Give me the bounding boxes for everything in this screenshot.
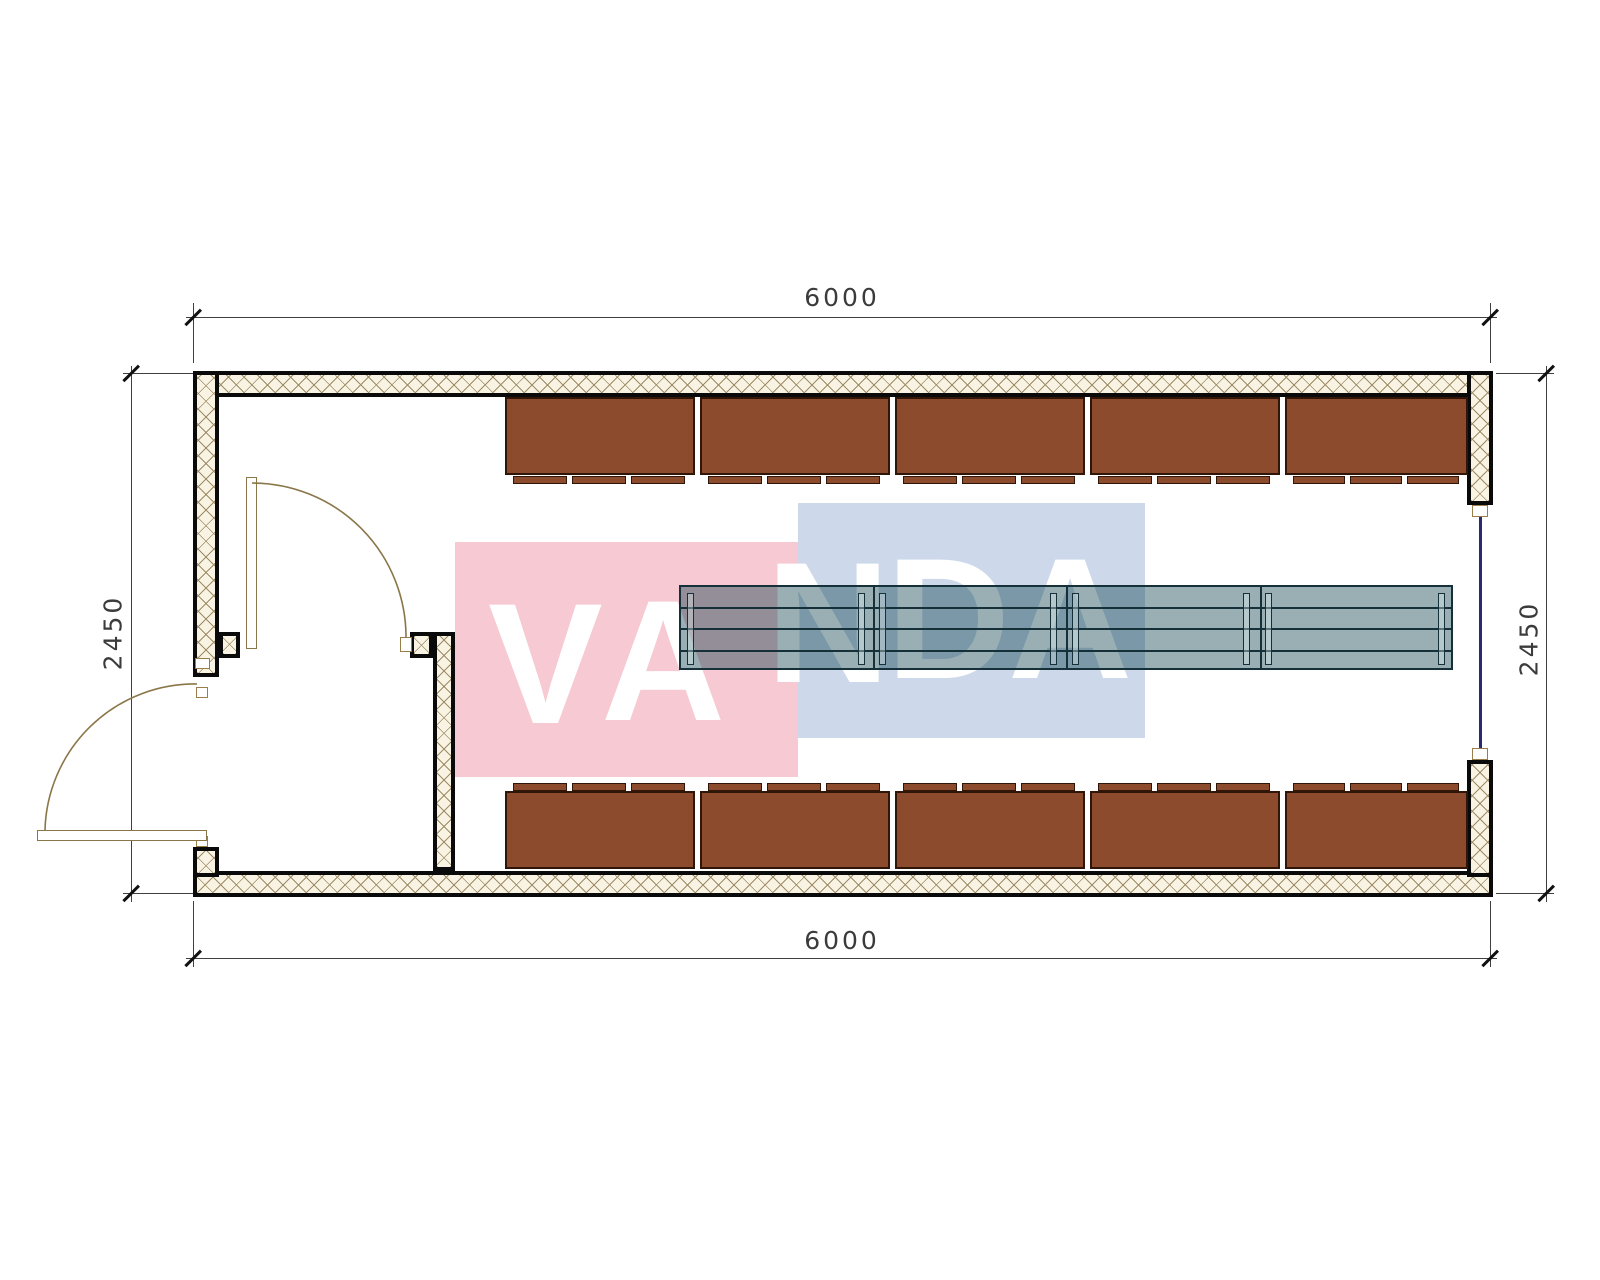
table-section-divider xyxy=(1066,585,1068,670)
table-leg xyxy=(1265,593,1272,665)
table-leg xyxy=(687,593,694,665)
interior-door-arc xyxy=(252,483,406,638)
table-leg xyxy=(1243,593,1250,665)
floor-plan: VANDA 6000 6000 2450 2450 xyxy=(0,0,1600,1280)
table-leg xyxy=(858,593,865,665)
table-section-divider xyxy=(873,585,875,670)
exterior-door-arc xyxy=(45,684,197,830)
table-leg xyxy=(1072,593,1079,665)
table-leg xyxy=(879,593,886,665)
table-leg xyxy=(1050,593,1057,665)
table-leg xyxy=(1438,593,1445,665)
table-section-divider xyxy=(1260,585,1262,670)
